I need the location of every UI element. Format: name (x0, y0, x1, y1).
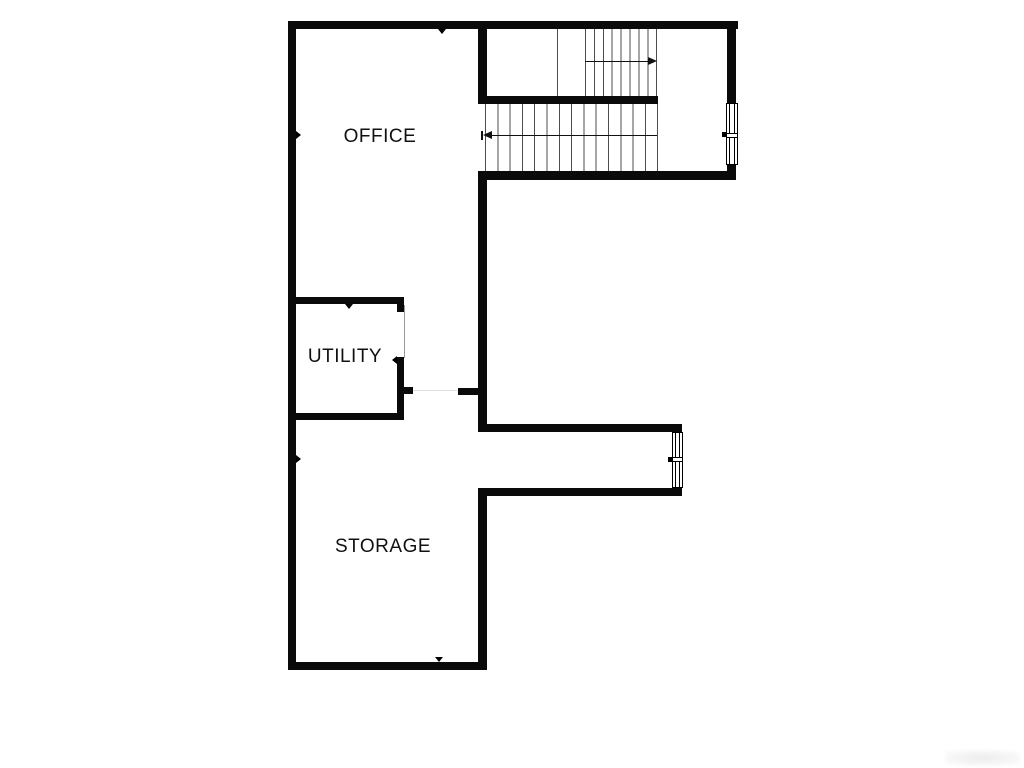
stair-lower-flight-treads (485, 104, 658, 171)
wall-tick (296, 455, 301, 463)
wall-tick (435, 657, 443, 662)
stair-upper-flight-treads (585, 29, 657, 96)
wall-utility-jamb-upper (397, 297, 404, 312)
wall-top-exterior (288, 21, 738, 29)
utility-door-leaf (404, 305, 405, 358)
window-transom-tick (722, 132, 726, 137)
wall-doorway-stub (458, 388, 478, 395)
wall-bottom-storage (288, 662, 487, 670)
room-label-office: OFFICE (330, 126, 430, 148)
stair-landing-window (726, 103, 738, 165)
wall-right-exterior-upper (727, 21, 736, 105)
window-transom-tick (668, 457, 672, 462)
window-transom (727, 133, 737, 138)
hall-window (672, 432, 683, 488)
wall-stair-middle (478, 96, 658, 104)
wall-central-spine (478, 180, 487, 432)
stair-lower-arrow-endbar (481, 131, 483, 140)
room-label-storage: STORAGE (323, 536, 443, 558)
floor-plan-canvas: OFFICE UTILITY STORAGE (0, 0, 1024, 768)
wall-tick (438, 29, 446, 34)
wall-hall-bottom (478, 488, 682, 496)
wall-tick (296, 131, 301, 139)
room-label-utility: UTILITY (295, 346, 395, 368)
window-transom (673, 457, 682, 462)
doorway-threshold-line (413, 390, 458, 391)
wall-storage-right (478, 496, 487, 670)
wall-stair-bottom (478, 171, 736, 180)
stair-upper-arrow-line (585, 61, 649, 62)
wall-utility-right (397, 357, 404, 420)
wall-utility-stub (404, 387, 413, 394)
wall-tick (345, 304, 353, 309)
watermark (945, 750, 1020, 766)
stair-break-line (557, 29, 558, 96)
stair-lower-arrow-head (483, 131, 492, 139)
wall-stair-left (478, 29, 487, 104)
stair-lower-arrow-line (490, 135, 657, 136)
wall-utility-bottom (288, 413, 404, 420)
stair-upper-arrow-head (648, 57, 657, 65)
wall-utility-top (288, 297, 404, 304)
wall-hall-top (478, 424, 682, 432)
